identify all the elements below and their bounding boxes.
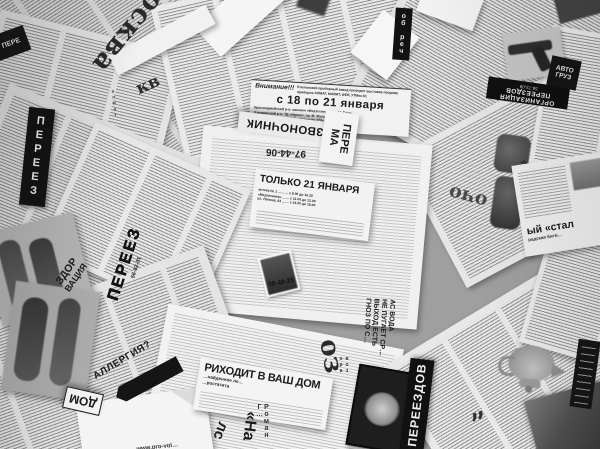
ls-text: лс xyxy=(210,420,232,442)
left-bar-text: ПЕРЕЕЗ xyxy=(27,115,48,200)
pere-ma-rotated: ПЕРЕ МА xyxy=(326,122,352,155)
avto-gruz-badge: АВТО ГРУЗ xyxy=(546,55,582,91)
pere-ma-card: ПЕРЕ МА xyxy=(319,110,360,166)
obrech-text: об реч xyxy=(398,13,408,55)
photo-figure xyxy=(12,296,49,383)
ocho-text: очо xyxy=(446,181,490,212)
teapot-sketch xyxy=(494,337,571,399)
newspaper-collage-photo: 08-48-25 осква кв алмат ПЕРЕЕЗ ПЕРЕ об р… xyxy=(0,0,600,449)
kv-text: кв xyxy=(133,71,163,99)
phone-upside-text: 97-44-06 xyxy=(266,146,307,159)
org-phone-text: 58-73-09 xyxy=(520,83,538,90)
teapot-handle xyxy=(497,355,515,376)
obrech-strip: об реч xyxy=(392,7,413,60)
chip-text: ПЕРЕ xyxy=(1,36,21,49)
card-blotch xyxy=(361,389,402,429)
faint-white-text-texture xyxy=(574,343,596,404)
teapot-knob xyxy=(525,385,533,393)
url-text: www.pro-vol… xyxy=(136,442,178,449)
quotes-text: „ xyxy=(462,389,488,426)
voz-ora-vertical: воз ора xyxy=(338,356,352,386)
dom-text: ДОМ xyxy=(68,391,98,411)
photo-content xyxy=(260,253,298,295)
roman-text: Роман Г… xyxy=(256,404,270,449)
stal-article: ый «стал радская битв… xyxy=(511,151,600,257)
attention-title: Внимание!!! xyxy=(255,82,294,91)
article-photo xyxy=(570,158,600,191)
perevozdov-text: ПЕРЕЕЗДОВ xyxy=(405,363,429,448)
teapot-spout xyxy=(551,364,566,379)
roman-vertical: Роман Г… xyxy=(256,404,270,449)
body-text-texture xyxy=(517,164,572,219)
voz-ora-text: воз ора xyxy=(338,356,350,386)
